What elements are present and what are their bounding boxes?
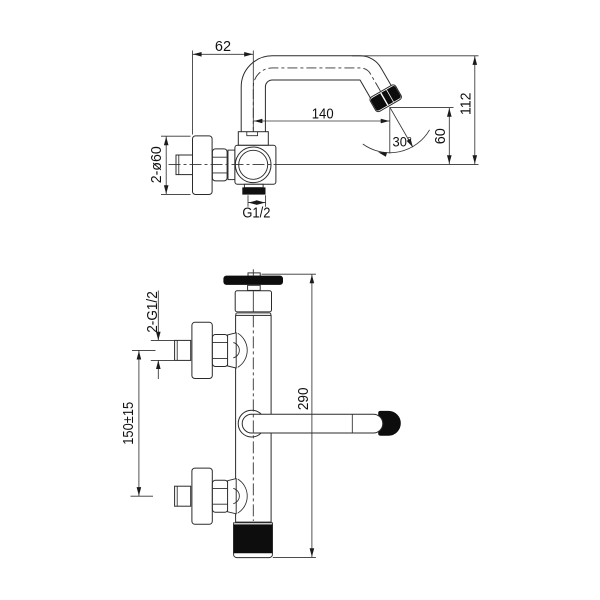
svg-text:2-G1/2: 2-G1/2 [145,291,161,333]
svg-text:140: 140 [312,106,334,122]
svg-text:60: 60 [433,128,449,144]
svg-text:290: 290 [296,388,312,411]
svg-text:2-ø60: 2-ø60 [149,146,165,183]
svg-text:G1/2: G1/2 [242,205,270,221]
svg-text:112: 112 [459,93,475,116]
svg-text:30°: 30° [393,133,413,149]
svg-text:150±15: 150±15 [121,402,137,445]
svg-text:62: 62 [215,39,231,55]
